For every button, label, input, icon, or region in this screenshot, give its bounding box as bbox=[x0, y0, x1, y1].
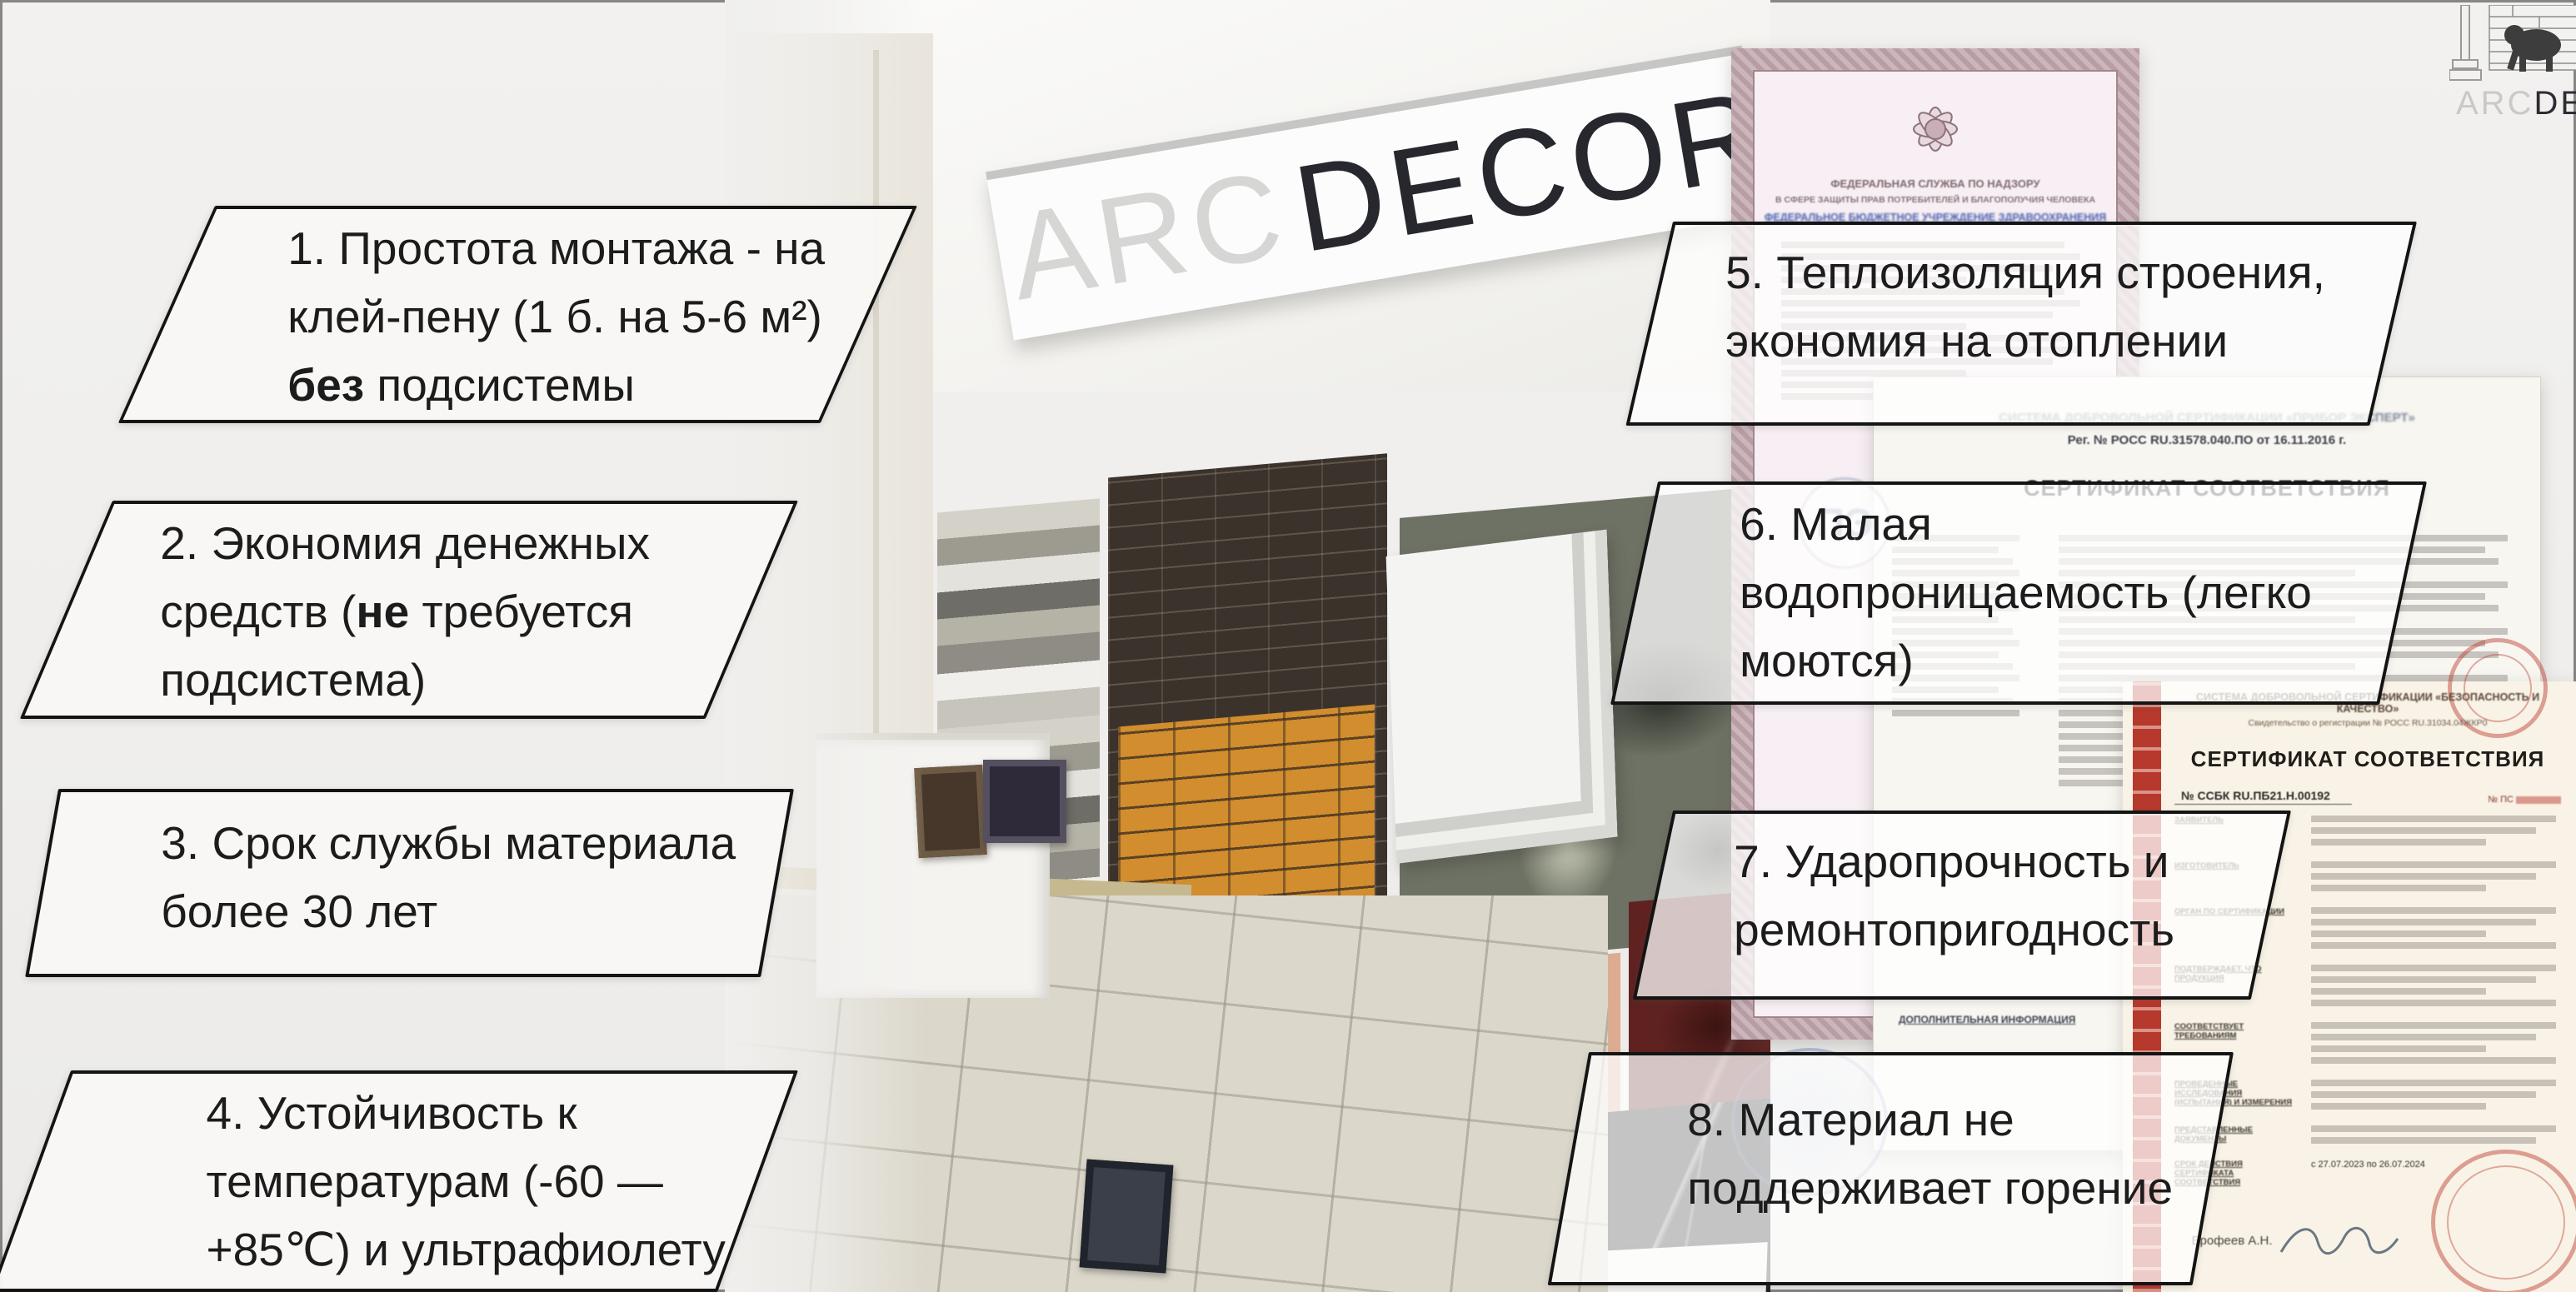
pribor-extra-label: ДОПОЛНИТЕЛЬНАЯ ИНФОРМАЦИЯ bbox=[1899, 1014, 2075, 1025]
callout-4: 4. Устойчивость ктемпературам (-60 —+85℃… bbox=[0, 1070, 798, 1292]
picture-frame bbox=[983, 760, 1066, 843]
callout-5-text: 5. Теплоизоляция строения,экономия на от… bbox=[1675, 225, 2413, 422]
logo-text-decor: DECOR bbox=[2534, 85, 2576, 122]
federal-line-2: В СФЕРЕ ЗАЩИТЫ ПРАВ ПОТРЕБИТЕЛЕЙ И БЛАГО… bbox=[1763, 195, 2108, 205]
picture-frame bbox=[1080, 1160, 1174, 1274]
logo-text-arc: ARC bbox=[2456, 85, 2534, 122]
slide: ARCDECOR ФЕДЕРАЛЬНАЯ СЛУЖБА ПО НАДЗОРУ В… bbox=[0, 0, 2576, 1292]
sign-text-arc: ARC bbox=[1000, 142, 1297, 328]
logo-drawing-icon bbox=[2449, 5, 2576, 82]
certificate-field-row: ПРОВЕДЕННЫЕ ИССЛЕДОВАНИЯ (ИСПЫТАНИЯ) И И… bbox=[2174, 1080, 2561, 1115]
red-stamp-bottom bbox=[2431, 1150, 2576, 1292]
signature-swirl-icon bbox=[2276, 1219, 2401, 1264]
callout-2: 2. Экономия денежныхсредств (не требуетс… bbox=[20, 501, 798, 719]
ssbk-ps-number: № ПС bbox=[2488, 795, 2561, 805]
ssbk-number: № ССБК RU.ПБ21.Н.00192 bbox=[2174, 789, 2352, 805]
certificate-emblem-icon bbox=[1903, 93, 1968, 165]
callout-1: 1. Простота монтажа - наклей-пену (1 б. … bbox=[118, 206, 917, 423]
ssbk-title: СЕРТИФИКАТ СООТВЕТСТВИЯ bbox=[2174, 746, 2561, 772]
callout-8-text: 8. Материал неподдерживает горение bbox=[1591, 1055, 2229, 1282]
pribor-reg-line: Рег. № РОСС RU.31578.040.ПО от 16.11.201… bbox=[1892, 433, 2522, 447]
callout-6-text: 6. Малаяводопроницаемость (легкомоются) bbox=[1660, 485, 2423, 701]
callout-2-text: 2. Экономия денежныхсредств (не требуетс… bbox=[114, 504, 793, 716]
picture-frame bbox=[914, 765, 987, 858]
callout-4-text: 4. Устойчивость ктемпературам (-60 —+85℃… bbox=[73, 1074, 794, 1289]
arcdecor-logo: ARCDECOR bbox=[2449, 5, 2576, 130]
callout-7-text: 7. Ударопрочность иремонтопригодность bbox=[1675, 814, 2287, 996]
ssbk-reg-line: Свидетельство о регистрации № РОСС RU.31… bbox=[2174, 718, 2561, 728]
callout-8: 8. Материал неподдерживает горение bbox=[1548, 1052, 2234, 1285]
callout-7: 7. Ударопрочность иремонтопригодность bbox=[1633, 811, 2291, 1000]
cornice-molding-sample bbox=[1386, 530, 1618, 864]
federal-line-1: ФЕДЕРАЛЬНАЯ СЛУЖБА ПО НАДЗОРУ bbox=[1768, 177, 2103, 190]
certificate-field-row: ПРЕДСТАВЛЕННЫЕ ДОКУМЕНТЫ bbox=[2174, 1125, 2561, 1149]
callout-3-text: 3. Срок службы материалаболее 30 лет bbox=[61, 792, 790, 974]
logo-wordmark: ARCDECOR bbox=[2456, 85, 2576, 122]
callout-1-text: 1. Простота монтажа - наклей-пену (1 б. … bbox=[217, 209, 912, 420]
callout-3: 3. Срок службы материалаболее 30 лет bbox=[25, 789, 794, 977]
certificate-field-row: СООТВЕТСТВУЕТ ТРЕБОВАНИЯМ bbox=[2174, 1022, 2561, 1069]
callout-5: 5. Теплоизоляция строения,экономия на от… bbox=[1625, 222, 2417, 426]
callout-6: 6. Малаяводопроницаемость (легкомоются) bbox=[1610, 481, 2427, 705]
